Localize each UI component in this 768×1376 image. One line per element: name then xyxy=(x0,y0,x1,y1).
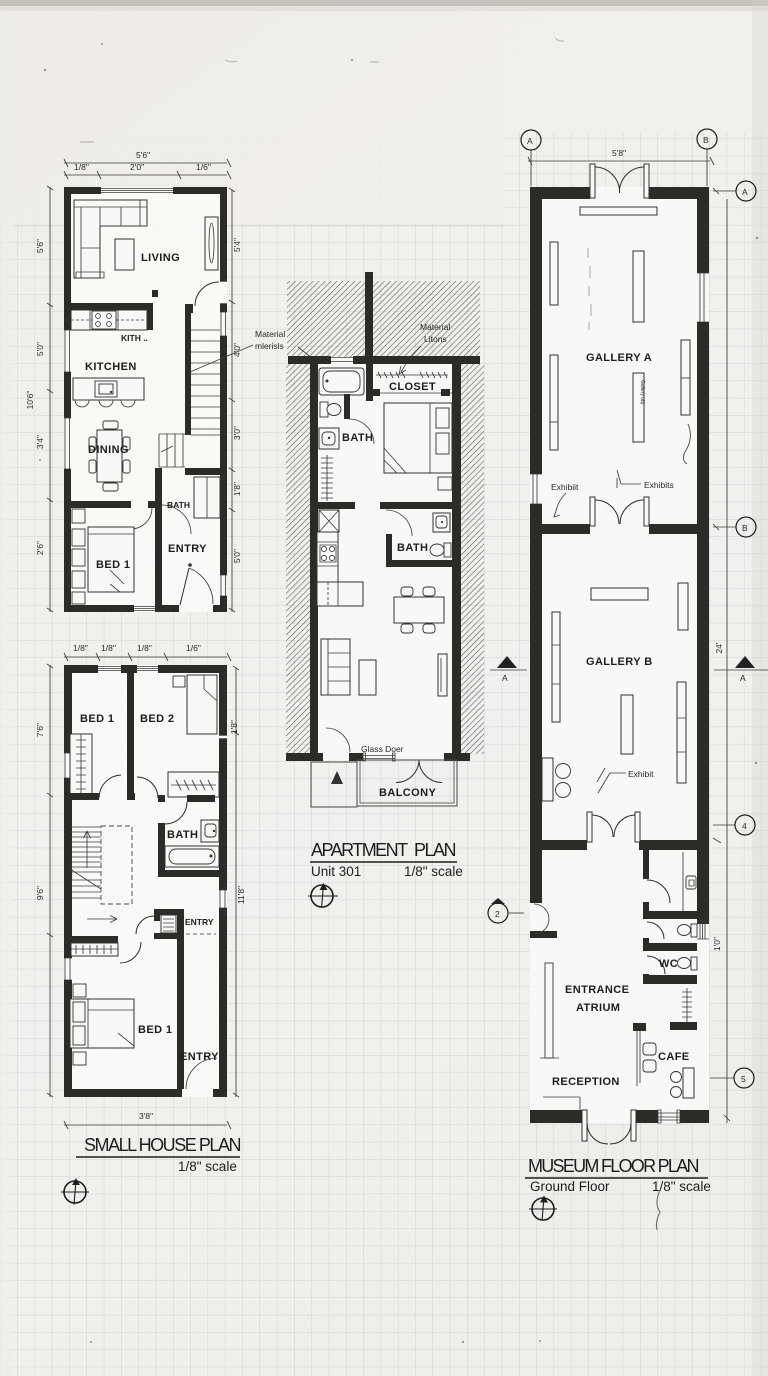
svg-text:5: 5 xyxy=(741,1074,746,1084)
svg-text:GALLERY B: GALLERY B xyxy=(586,656,653,668)
svg-text:1'8": 1'8" xyxy=(229,720,239,734)
svg-text:BED 1: BED 1 xyxy=(138,1024,172,1036)
svg-text:Exhibiit: Exhibiit xyxy=(551,482,579,492)
svg-text:7'6": 7'6" xyxy=(35,723,45,737)
svg-text:B: B xyxy=(703,135,709,145)
svg-text:A: A xyxy=(527,136,533,146)
svg-text:1/8": 1/8" xyxy=(73,643,88,653)
svg-text:ENTRY: ENTRY xyxy=(168,543,207,555)
svg-text:Exhibits: Exhibits xyxy=(644,480,674,490)
svg-text:1/6": 1/6" xyxy=(186,643,201,653)
svg-text:1'8": 1'8" xyxy=(232,482,242,496)
svg-text:BATH: BATH xyxy=(167,829,198,841)
svg-text:1'0": 1'0" xyxy=(712,937,722,951)
svg-text:SMALL HOUSE PLAN: SMALL HOUSE PLAN xyxy=(84,1135,242,1155)
svg-text:WC: WC xyxy=(659,958,678,970)
svg-text:LIVING: LIVING xyxy=(141,252,180,264)
svg-text:GALLERY A: GALLERY A xyxy=(586,352,652,364)
svg-text:mlerisls: mlerisls xyxy=(255,341,284,351)
svg-text:2'6": 2'6" xyxy=(35,541,45,555)
svg-text:Litons: Litons xyxy=(424,334,447,344)
svg-text:RECEPTION: RECEPTION xyxy=(552,1076,620,1088)
svg-text:BED 1: BED 1 xyxy=(96,559,130,571)
svg-text:11'8": 11'8" xyxy=(236,886,246,904)
svg-text:4: 4 xyxy=(742,821,747,831)
svg-text:9'6": 9'6" xyxy=(35,886,45,900)
svg-text:5'0": 5'0" xyxy=(232,549,242,563)
svg-text:BALCONY: BALCONY xyxy=(379,787,436,799)
svg-text:5'0": 5'0" xyxy=(35,342,45,356)
svg-text:3'8": 3'8" xyxy=(139,1111,153,1121)
svg-text:2: 2 xyxy=(495,909,500,919)
svg-text:1/8": 1/8" xyxy=(74,162,89,172)
svg-text:1/6": 1/6" xyxy=(196,162,211,172)
svg-text:5'4": 5'4" xyxy=(232,238,242,252)
svg-text:Gallery obj: Gallery obj xyxy=(639,380,645,404)
svg-text:Exhibit: Exhibit xyxy=(628,769,654,779)
svg-text:A: A xyxy=(742,187,748,197)
svg-text:1/8" scale: 1/8" scale xyxy=(652,1179,711,1194)
svg-text:Glass Doer: Glass Doer xyxy=(361,744,404,754)
svg-text:1/8": 1/8" xyxy=(101,643,116,653)
svg-text:1/8": 1/8" xyxy=(137,643,152,653)
svg-text:24': 24' xyxy=(714,642,724,653)
svg-text:ENTRY: ENTRY xyxy=(185,917,214,927)
svg-text:BED 1: BED 1 xyxy=(80,713,114,725)
svg-text:1/8" scale: 1/8" scale xyxy=(404,864,463,879)
svg-text:Material: Material xyxy=(420,322,450,332)
svg-text:BATH: BATH xyxy=(342,432,373,444)
svg-text:APARTMENT PLAN: APARTMENT PLAN xyxy=(311,840,457,860)
svg-text:ENTRY: ENTRY xyxy=(180,1051,219,1063)
svg-text:Unit 301: Unit 301 xyxy=(311,864,361,879)
svg-text:5'8": 5'8" xyxy=(612,148,626,158)
svg-text:3'0": 3'0" xyxy=(232,426,242,440)
svg-text:DINING: DINING xyxy=(88,444,129,456)
svg-text:5'6": 5'6" xyxy=(136,150,150,160)
svg-text:ATRIUM: ATRIUM xyxy=(576,1002,620,1014)
svg-text:B: B xyxy=(742,523,748,533)
svg-text:KITCHEN: KITCHEN xyxy=(85,361,137,373)
svg-text:2'0": 2'0" xyxy=(130,162,144,172)
svg-text:Material: Material xyxy=(255,329,285,339)
svg-text:10'6": 10'6" xyxy=(25,391,35,410)
svg-text:CLOSET: CLOSET xyxy=(389,381,436,393)
svg-text:ENTRANCE: ENTRANCE xyxy=(565,984,629,996)
svg-text:1/8" scale: 1/8" scale xyxy=(178,1159,237,1174)
svg-text:5'6": 5'6" xyxy=(35,239,45,253)
svg-text:Ground Floor: Ground Floor xyxy=(530,1179,610,1194)
svg-text:MUSEUM FLOOR PLAN: MUSEUM FLOOR PLAN xyxy=(528,1156,700,1176)
svg-text:CAFE: CAFE xyxy=(658,1051,690,1063)
svg-text:A: A xyxy=(740,673,746,683)
svg-text:BED 2: BED 2 xyxy=(140,713,174,725)
svg-text:BATH: BATH xyxy=(397,542,428,554)
svg-text:3'4": 3'4" xyxy=(35,435,45,449)
svg-text:A: A xyxy=(502,673,508,683)
svg-text:KITH ..: KITH .. xyxy=(121,333,148,343)
svg-text:BATH: BATH xyxy=(167,500,190,510)
